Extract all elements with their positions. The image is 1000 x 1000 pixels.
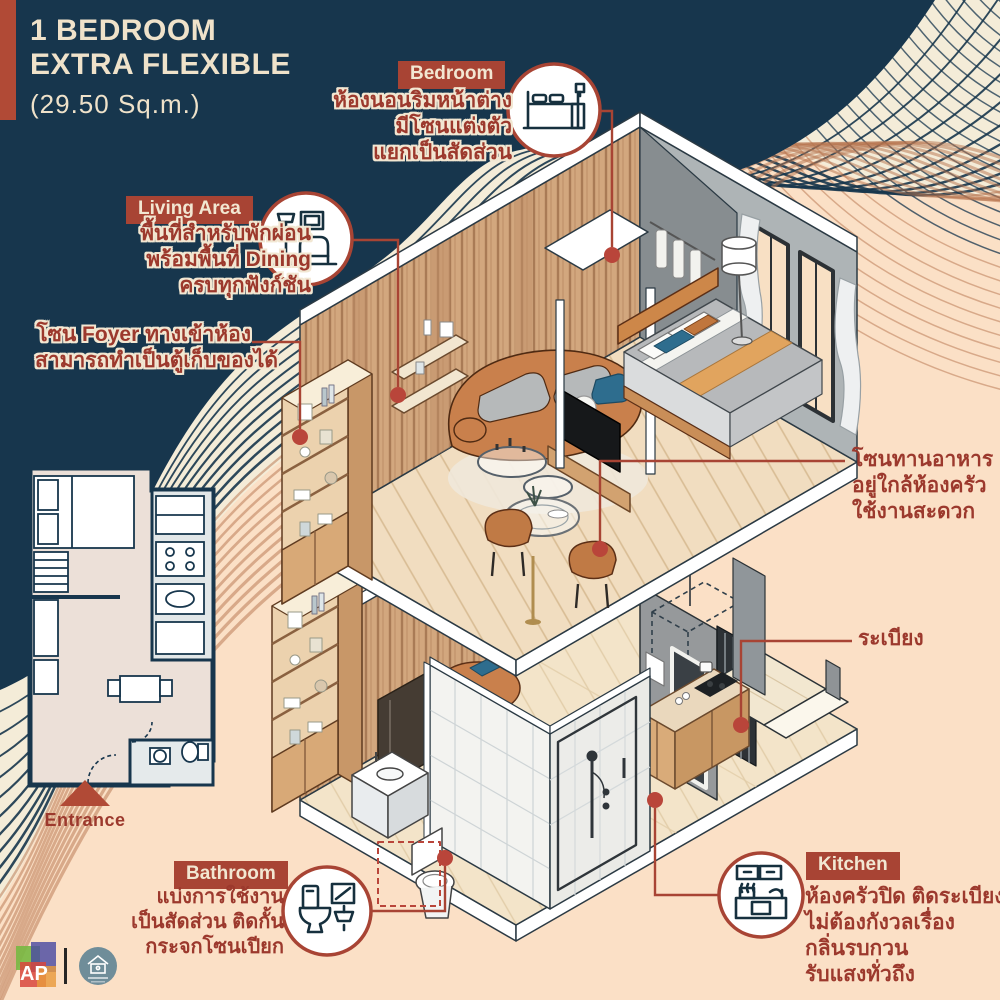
bathroom-callout-text: แบ่งการใช้งาน เป็นสัดส่วน ติดกั้น กระจกโ… (130, 885, 284, 959)
kitchen-icon-badge (719, 853, 803, 937)
bathroom-icon-badge (283, 867, 371, 955)
bathroom-marker-dot (437, 850, 453, 866)
dining-line-3: ใช้งานสะดวก (852, 499, 997, 525)
page-title: 1 BEDROOM EXTRA FLEXIBLE (29.50 Sq.m.) (30, 14, 291, 120)
balcony-marker-dot (733, 717, 749, 733)
floorplan-2d (30, 468, 213, 785)
bathroom-line-1: แบ่งการใช้งาน (130, 885, 284, 910)
foyer-line-2: สามารถทำเป็นตู้เก็บของได้ (35, 348, 251, 374)
kitchen-badge: Kitchen (806, 852, 900, 880)
bathroom-line-3: กระจกโซนเปียก (130, 935, 284, 960)
dining-line-1: โซนทานอาหาร (852, 447, 997, 473)
kitchen-line-2: ไม่ต้องกังวลเรื่อง (805, 910, 1000, 936)
dining-chair-1 (485, 509, 532, 546)
dining-callout-text: โซนทานอาหาร อยู่ใกล้ห้องครัว ใช้งานสะดวก (852, 447, 997, 525)
bedroom-line-3: แยกเป็นสัดส่วน (310, 140, 512, 166)
kitchen-marker-dot (647, 792, 663, 808)
title-area: (29.50 Sq.m.) (30, 89, 291, 120)
foyer-callout-text: โซน Foyer ทางเข้าห้อง สามารถทำเป็นตู้เก็… (35, 322, 251, 374)
footer-logos: AP (16, 942, 117, 987)
entrance-label: Entrance (35, 810, 135, 832)
living-area-badge: Living Area (126, 196, 253, 224)
foyer-shelf-lower (272, 568, 362, 812)
bathroom-line-2: เป็นสัดส่วน ติดกั้น (130, 910, 284, 935)
kitchen-line-1: ห้องครัวปิด ติดระเบียง (805, 884, 1000, 910)
title-line-2: EXTRA FLEXIBLE (30, 48, 291, 82)
living-line-2: พร้อมพื้นที่ Dining (95, 247, 311, 273)
ap-logo: AP (16, 942, 56, 987)
dining-line-2: อยู่ใกล้ห้องครัว (852, 473, 997, 499)
partition-post-1 (556, 300, 564, 468)
title-accent-bar (0, 0, 16, 120)
living-line-1: พื้นที่สำหรับพักผ่อน (95, 221, 311, 247)
kitchen-line-4: รับแสงทั่วถึง (805, 962, 1000, 988)
foyer-line-1: โซน Foyer ทางเข้าห้อง (35, 322, 251, 348)
dining-marker-dot (592, 541, 608, 557)
bedroom-callout-text: ห้องนอนริมหน้าต่าง มีโซนแต่งตัว แยกเป็นส… (310, 88, 512, 166)
kettle (700, 662, 712, 672)
foyer-shelf-upper (282, 360, 372, 604)
infographic-root: AP 1 BEDROOM EXTRA FLEXIBLE (29.50 Sq.m.… (0, 0, 1000, 1000)
kitchen-callout-text: ห้องครัวปิด ติดระเบียง ไม่ต้องกังวลเรื่อ… (805, 884, 1000, 988)
bedroom-line-1: ห้องนอนริมหน้าต่าง (310, 88, 512, 114)
foyer-marker-dot (292, 429, 308, 445)
living-callout-text: พื้นที่สำหรับพักผ่อน พร้อมพื้นที่ Dining… (95, 221, 311, 299)
living-marker-dot (390, 387, 406, 403)
bedroom-marker-dot (604, 247, 620, 263)
partner-logo (79, 947, 117, 985)
logo-divider (64, 948, 67, 984)
title-line-1: 1 BEDROOM (30, 14, 291, 48)
bedroom-line-2: มีโซนแต่งตัว (310, 114, 512, 140)
kitchen-line-3: กลิ่นรบกวน (805, 936, 1000, 962)
living-line-3: ครบทุกฟังก์ชัน (95, 273, 311, 299)
bedroom-icon-badge (508, 64, 600, 156)
bedroom-badge: Bedroom (398, 61, 505, 89)
ap-logo-text: AP (20, 963, 48, 985)
balcony-callout-text: ระเบียง (858, 626, 924, 652)
